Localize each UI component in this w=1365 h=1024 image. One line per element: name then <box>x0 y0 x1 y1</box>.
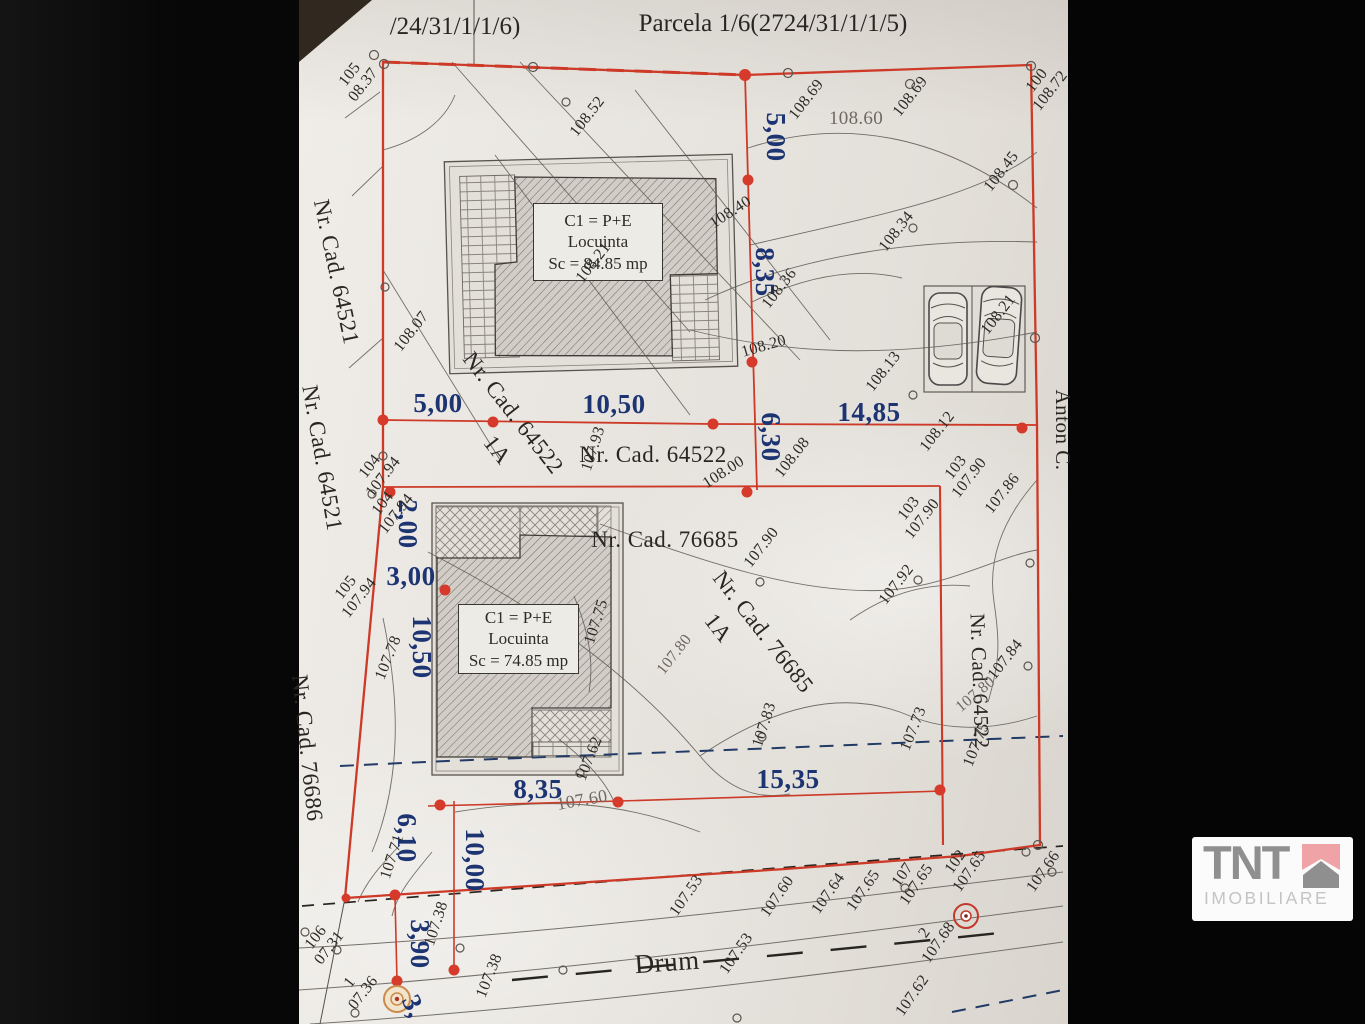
house-icon <box>1300 844 1342 888</box>
building-use: Locuinta <box>488 628 548 649</box>
building-label-lower: C1 = P+E Locuinta Sc = 74.85 mp <box>458 604 579 674</box>
building-type: C1 = P+E <box>485 607 552 628</box>
dimension-label: 10,50 <box>408 615 436 678</box>
photo-corner-shadow <box>299 0 372 62</box>
dimension-label: 14,85 <box>837 398 900 426</box>
real-estate-listing-photo: C1 = P+E Locuinta Sc = 84.85 mp C1 = P+E… <box>0 0 1365 1024</box>
agency-logo-subtitle: IMOBILIARE <box>1204 888 1329 909</box>
dimension-label: 5,00 <box>762 112 790 161</box>
cadastral-number-label: Nr. Cad. 76685 <box>591 528 739 552</box>
parcel-header-right: Parcela 1/6(2724/31/1/1/5) <box>639 11 908 37</box>
site-plan-drawing <box>0 0 1365 1024</box>
road-label: Drum <box>634 946 701 979</box>
dimension-label: 5,00 <box>413 389 462 417</box>
dimension-label: 10,50 <box>582 390 645 418</box>
dimension-label: 6,30 <box>757 412 785 461</box>
benchmark-icon <box>954 904 978 928</box>
agency-logo-text: TNT <box>1203 835 1288 890</box>
agency-logo: TNT IMOBILIARE <box>1192 837 1353 921</box>
parcel-header-left: /24/31/1/1/6) <box>390 14 521 40</box>
building-type: C1 = P+E <box>564 210 631 231</box>
dimension-label: 10,00 <box>461 828 489 891</box>
elevation-label: 108.60 <box>829 109 883 129</box>
street-name-label: Anton C. <box>1051 389 1073 470</box>
dimension-label: 3,00 <box>386 562 435 590</box>
building-area: Sc = 74.85 mp <box>469 650 568 671</box>
dimension-label: 15,35 <box>756 765 819 793</box>
